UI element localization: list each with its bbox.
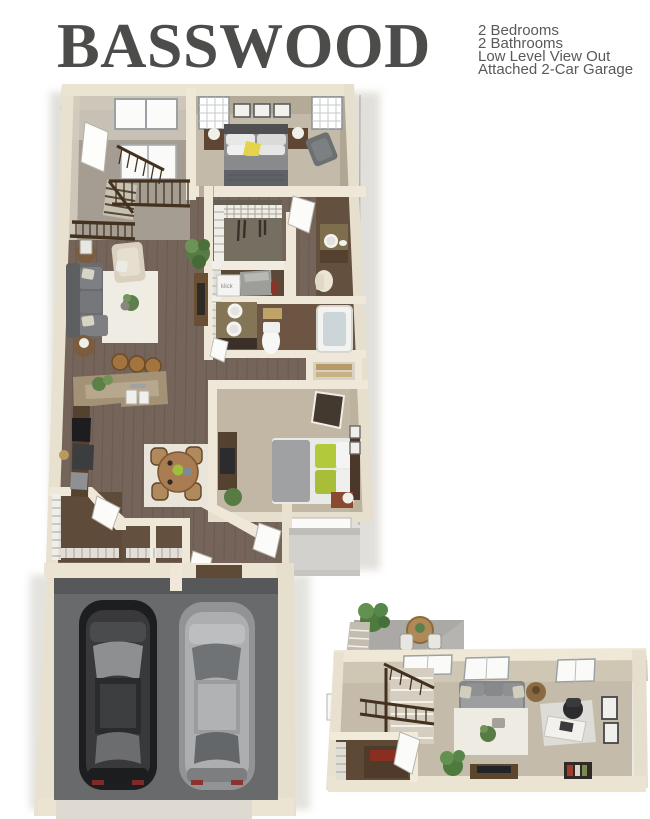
svg-text:klick: klick: [221, 284, 234, 290]
svg-text:BASSWOOD: BASSWOOD: [57, 10, 431, 81]
svg-text:Attached 2-Car Garage: Attached 2-Car Garage: [478, 61, 633, 78]
